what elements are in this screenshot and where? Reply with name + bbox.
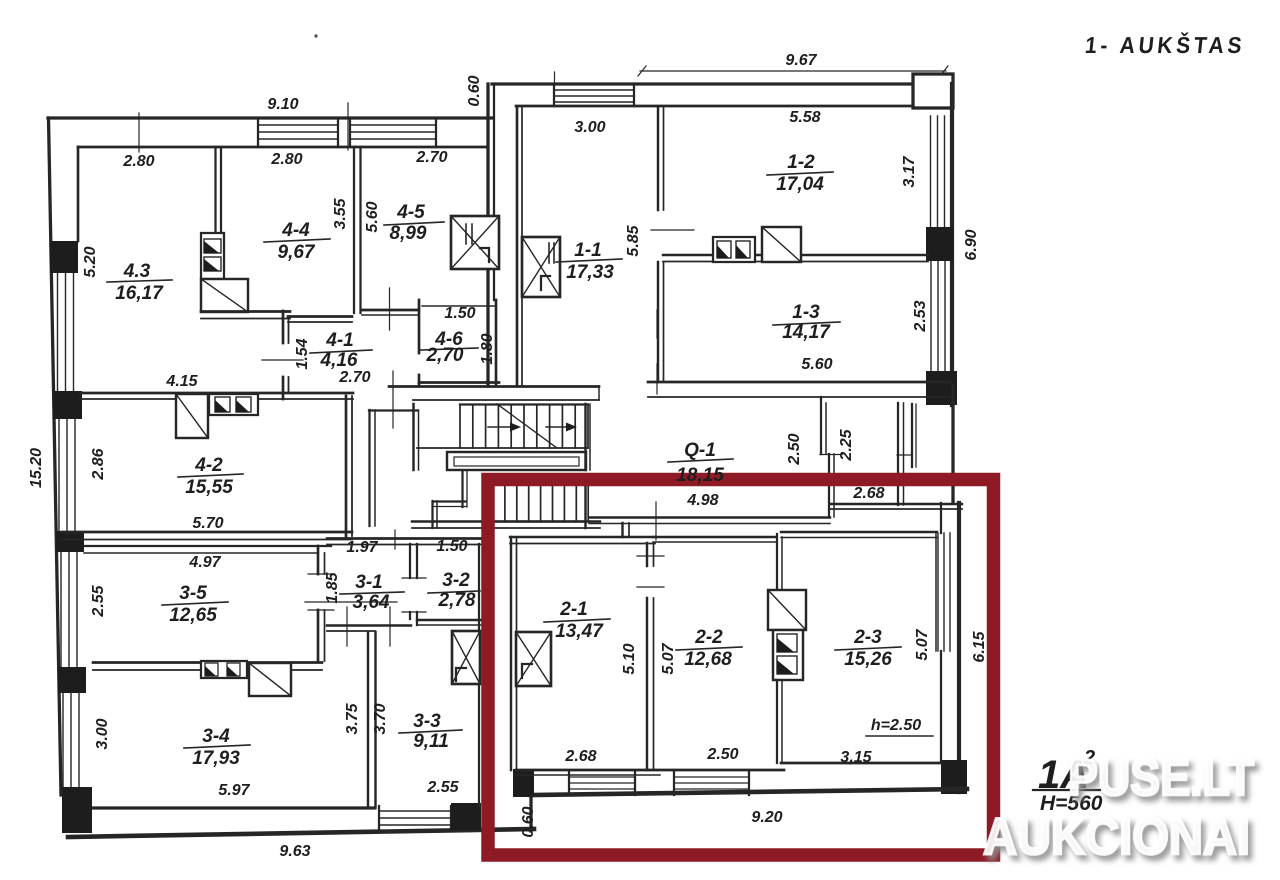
svg-text:12,65: 12,65: [169, 605, 217, 626]
svg-text:2.80: 2.80: [270, 151, 302, 168]
svg-text:2.70: 2.70: [338, 369, 370, 386]
svg-text:PUSE.LT: PUSE.LT: [1068, 749, 1254, 807]
svg-text:3.70: 3.70: [372, 703, 389, 734]
svg-text:4.15: 4.15: [165, 373, 198, 390]
svg-text:12,68: 12,68: [684, 649, 732, 670]
svg-text:3.00: 3.00: [574, 119, 605, 136]
svg-text:3,64: 3,64: [353, 592, 390, 613]
svg-text:3-2: 3-2: [442, 570, 470, 591]
svg-text:9.10: 9.10: [267, 96, 298, 113]
svg-text:1-3: 1-3: [792, 302, 820, 323]
svg-text:4,16: 4,16: [320, 350, 358, 371]
svg-text:4.98: 4.98: [686, 492, 718, 509]
svg-text:2.68: 2.68: [852, 485, 884, 502]
svg-text:15,26: 15,26: [844, 649, 892, 670]
svg-text:4-2: 4-2: [194, 455, 223, 476]
svg-text:5.07: 5.07: [914, 628, 931, 660]
svg-text:5.60: 5.60: [801, 356, 832, 373]
svg-text:3.75: 3.75: [344, 702, 361, 734]
svg-text:3-3: 3-3: [413, 711, 441, 732]
svg-text:2.68: 2.68: [564, 748, 596, 765]
svg-text:18,15: 18,15: [676, 465, 724, 486]
svg-text:Q-1: Q-1: [684, 440, 716, 461]
svg-text:15.20: 15.20: [28, 448, 45, 488]
svg-text:9.67: 9.67: [785, 52, 817, 69]
svg-text:5.58: 5.58: [789, 109, 820, 126]
svg-text:13,47: 13,47: [555, 621, 604, 642]
svg-text:2-3: 2-3: [853, 627, 882, 648]
svg-text:5.60: 5.60: [364, 201, 381, 232]
svg-text:h=2.50: h=2.50: [871, 717, 921, 734]
svg-text:2.55: 2.55: [90, 584, 107, 617]
svg-text:9.20: 9.20: [751, 809, 782, 826]
svg-text:15,55: 15,55: [185, 477, 233, 498]
svg-text:2-1: 2-1: [559, 599, 587, 620]
svg-text:2.50: 2.50: [786, 433, 803, 465]
svg-text:14,17: 14,17: [782, 322, 831, 343]
svg-text:3.55: 3.55: [332, 197, 349, 229]
svg-text:4-5: 4-5: [396, 202, 425, 223]
svg-text:8,99: 8,99: [390, 223, 427, 244]
svg-text:1-2: 1-2: [787, 152, 815, 173]
svg-text:3.17: 3.17: [901, 155, 918, 187]
svg-text:4.3: 4.3: [123, 261, 151, 282]
svg-text:3-1: 3-1: [355, 572, 382, 593]
svg-text:1.50: 1.50: [436, 538, 467, 555]
svg-text:2.55: 2.55: [426, 779, 459, 796]
svg-text:2,70: 2,70: [426, 345, 464, 366]
svg-text:3.00: 3.00: [94, 718, 111, 749]
svg-text:1.85: 1.85: [324, 571, 341, 603]
svg-text:4-4: 4-4: [281, 220, 310, 241]
svg-text:1-1: 1-1: [574, 240, 601, 261]
svg-text:17,04: 17,04: [776, 174, 824, 195]
svg-text:17,33: 17,33: [566, 262, 614, 283]
svg-text:0.60: 0.60: [466, 75, 483, 106]
svg-text:2.70: 2.70: [415, 149, 447, 166]
svg-text:6.15: 6.15: [971, 630, 988, 662]
svg-text:2.50: 2.50: [706, 746, 738, 763]
svg-text:17,93: 17,93: [192, 748, 240, 769]
svg-text:6.90: 6.90: [963, 229, 980, 260]
svg-text:0.60: 0.60: [520, 806, 537, 837]
svg-text:2.25: 2.25: [838, 428, 855, 461]
svg-text:9,11: 9,11: [413, 731, 449, 752]
svg-text:4-1: 4-1: [325, 330, 353, 351]
svg-text:AUKCIONAI: AUKCIONAI: [983, 808, 1250, 866]
svg-text:3,15: 3,15: [840, 749, 872, 766]
svg-text:5.10: 5.10: [621, 643, 638, 674]
svg-text:5.70: 5.70: [192, 515, 223, 532]
svg-text:2,78: 2,78: [438, 590, 476, 611]
svg-text:1.80: 1.80: [479, 333, 496, 364]
svg-text:2-2: 2-2: [694, 627, 723, 648]
svg-text:2.80: 2.80: [122, 153, 154, 170]
svg-text:1.54: 1.54: [294, 338, 311, 369]
svg-text:3-4: 3-4: [202, 726, 230, 747]
svg-text:1.50: 1.50: [444, 305, 475, 322]
svg-text:5.07: 5.07: [660, 642, 677, 674]
svg-text:9.63: 9.63: [279, 843, 310, 860]
svg-text:1.97: 1.97: [346, 539, 378, 556]
svg-text:5.20: 5.20: [82, 246, 99, 277]
svg-text:2.53: 2.53: [912, 300, 929, 332]
svg-text:5.97: 5.97: [218, 782, 250, 799]
svg-text:4.97: 4.97: [188, 554, 221, 571]
svg-text:2.86: 2.86: [90, 448, 107, 480]
svg-text:5.85: 5.85: [625, 224, 642, 256]
svg-text:1- AUKŠTAS: 1- AUKŠTAS: [1084, 31, 1247, 58]
svg-text:16,17: 16,17: [115, 283, 164, 304]
svg-text:3-5: 3-5: [179, 583, 207, 604]
svg-text:9,67: 9,67: [278, 242, 316, 263]
